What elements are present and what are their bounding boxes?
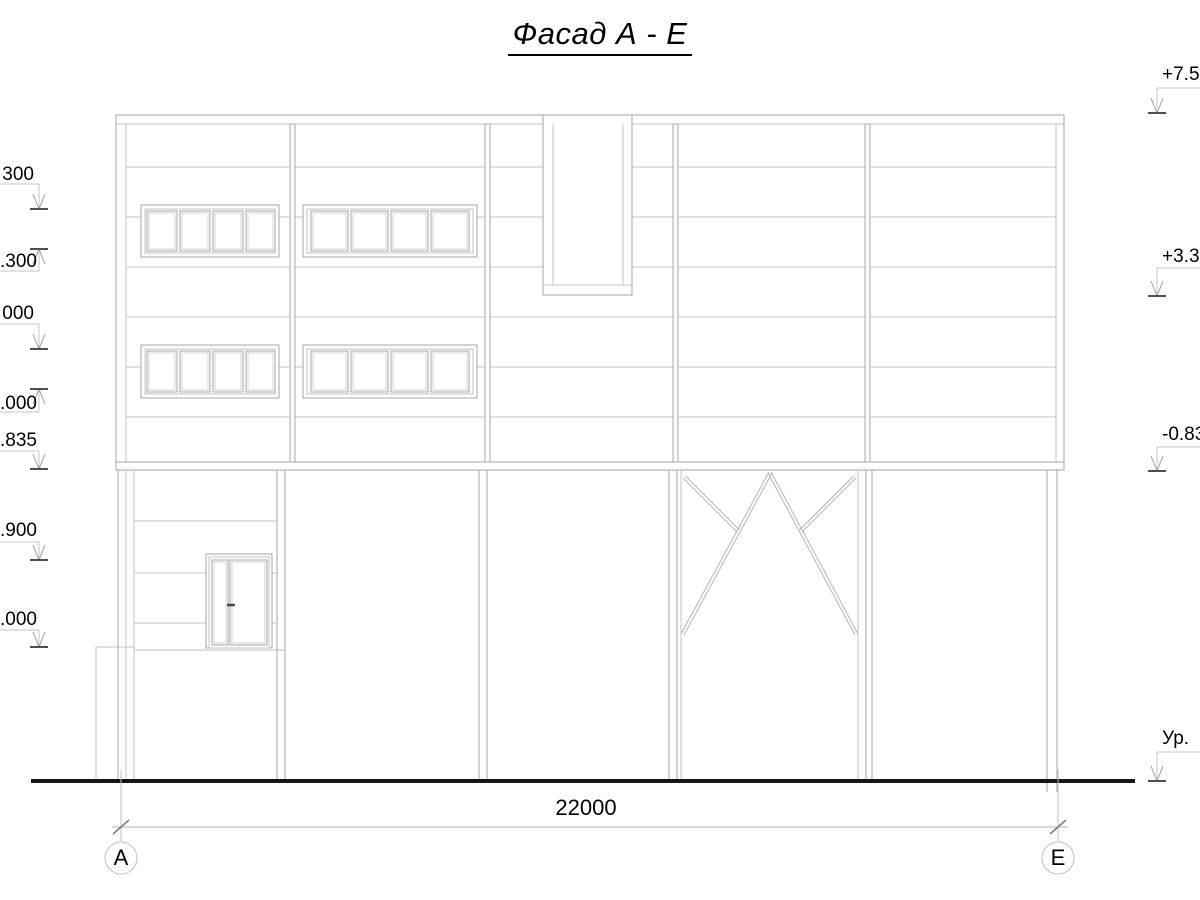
elevation-label-right-4: Ур. bbox=[1162, 728, 1200, 750]
elevation-label-left-6: .900 bbox=[0, 520, 34, 542]
diagonal-braces bbox=[681, 472, 858, 635]
axis-label-a: А bbox=[99, 845, 143, 871]
elevation-label-left-5: .835 bbox=[0, 430, 34, 452]
elevation-arrow-icon bbox=[1148, 268, 1200, 296]
floor-band bbox=[116, 462, 1064, 470]
elevation-arrow-icon bbox=[0, 542, 48, 560]
elevation-label-left-3: 000 bbox=[0, 303, 34, 325]
elevation-arrow-icon bbox=[1148, 752, 1200, 781]
axis-bubbles bbox=[105, 842, 1074, 874]
elevation-label-left-4: .000 bbox=[0, 393, 34, 415]
elevation-arrow-icon bbox=[0, 184, 48, 209]
elevation-arrow-icon bbox=[0, 451, 48, 469]
elevation-arrow-icon bbox=[1148, 447, 1200, 471]
elevation-arrow-icon bbox=[0, 324, 48, 349]
elevation-label-right-2: +3.30 bbox=[1162, 246, 1200, 268]
window-row2-right bbox=[303, 345, 477, 398]
facade-linework bbox=[0, 0, 1200, 900]
facade-drawing-sheet: Фасад А - Е 300 .300 000 .000 .835 .900 … bbox=[0, 0, 1200, 900]
elevation-label-left-2: .300 bbox=[0, 251, 34, 273]
window-row1-left bbox=[141, 205, 279, 257]
window-row1-right bbox=[303, 205, 477, 257]
elevation-arrow-icon bbox=[1148, 88, 1200, 113]
dimension-total-label: 22000 bbox=[526, 795, 646, 821]
elevation-arrow-icon bbox=[0, 630, 48, 647]
chimney bbox=[543, 115, 632, 295]
entrance-door bbox=[206, 554, 272, 648]
window-row2-left bbox=[141, 345, 279, 398]
axis-label-e: Е bbox=[1036, 845, 1080, 871]
elevation-label-left-1: 300 bbox=[0, 164, 34, 186]
elevation-label-left-7: .000 bbox=[0, 609, 34, 631]
drawing-title: Фасад А - Е bbox=[0, 16, 1200, 56]
elevation-label-right-3: -0.83 bbox=[1162, 424, 1200, 446]
elevation-label-right-1: +7.50 bbox=[1162, 64, 1200, 86]
